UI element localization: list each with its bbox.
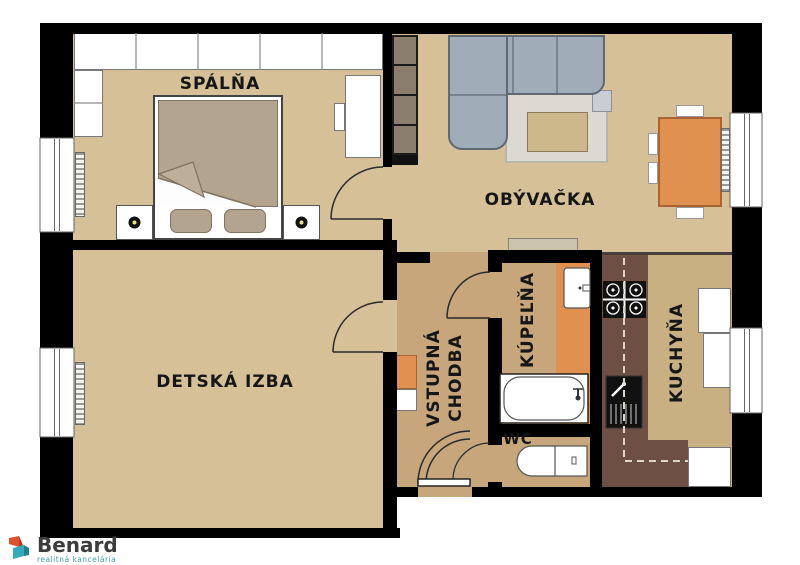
window-kids-room [40,348,74,437]
kitchen-label: KUCHYŇA [667,293,687,413]
window-bedroom [40,138,74,232]
dining-chair-left-1 [648,133,658,155]
hall-top-doorway [430,252,488,263]
wall-hall-bath-upper [488,250,502,272]
agency-logo: Benard realitná kancelária [8,536,118,564]
bed-blanket [158,100,278,207]
agency-logo-text: Benard realitná kancelária [37,536,118,564]
kitchen-counter-left [602,255,648,440]
wall-left-upper [40,23,73,138]
wall-bottom-right-a [397,487,418,497]
entrance-hall-label: VSTUPNÁ CHODBA [423,318,467,438]
wall-right-mid [732,207,762,328]
bedroom-label: SPÁLŇA [150,74,290,94]
floor-plan: SPÁLŇA OBÝVAČKA DETSKÁ IZBA VSTUPNÁ CHOD… [0,0,800,565]
wall-hall-wc-lower [488,482,502,497]
wall-bedroom-right-stub [383,219,392,240]
kitchen-cabinet-bottom-right [688,447,731,487]
bedroom-desk [345,75,381,158]
bedroom-radiator [75,152,85,217]
dining-chair-top [676,105,704,117]
bedroom-cabinet [74,70,103,137]
living-wardrobe [392,35,418,155]
wall-left-lower [40,437,73,538]
wall-top [40,23,762,34]
dining-chair-left-2 [648,162,658,184]
dining-chair-bottom [676,207,704,219]
kids-door-gap [383,300,397,352]
bed-pillow-right [224,209,266,233]
kitchen-cabinet-right-2 [703,333,731,388]
bed-pillow-left [170,209,212,233]
bathroom-label: KÚPEĽŇA [518,260,538,380]
agency-name: Benard [37,536,118,555]
bedroom-door-gap [383,167,392,219]
kitchen-counter-bottom [602,440,688,487]
sofa-chaise [448,35,508,150]
bathroom-door-gap [488,272,502,318]
wall-junction-vertical [383,240,397,300]
living-wardrobe-cap [392,155,418,165]
nightstand-left [116,205,153,240]
wc-label: WC [498,430,538,448]
wall-bottom-right-b [472,487,762,497]
wc-door-gap [488,445,502,482]
kitchen-cabinet-right-1 [698,288,731,333]
kids-room-label: DETSKÁ IZBA [125,372,325,392]
wall-kids-right [383,352,397,528]
living-room-label: OBÝVAČKA [460,190,620,210]
wall-bedroom-kids-divider [40,240,392,250]
kitchen-living-divider [602,252,732,255]
agency-tagline: realitná kancelária [37,555,118,564]
bedroom-wardrobe [74,33,383,70]
window-kitchen [730,328,762,413]
agency-logo-icon [8,536,32,562]
coffee-table [527,112,588,152]
wall-hall-top [397,252,430,263]
nightstand-right [283,205,320,240]
wall-right-upper [732,23,762,113]
wall-bathroom-top [488,250,602,263]
wall-right-lower [732,413,762,497]
entry-door-gap [418,487,472,497]
dining-table [658,117,722,207]
window-living-room [730,113,762,207]
entrance-hall-label-line1: VSTUPNÁ [423,318,445,438]
wall-bath-kitchen [590,250,602,497]
wall-bedroom-right [383,33,392,167]
kids-room-radiator [75,362,85,425]
bedroom-chair [334,103,345,131]
entrance-hall-label-line2: CHODBA [445,318,467,438]
bathroom-tiles-orange [556,263,590,424]
living-room-radiator [721,128,730,192]
